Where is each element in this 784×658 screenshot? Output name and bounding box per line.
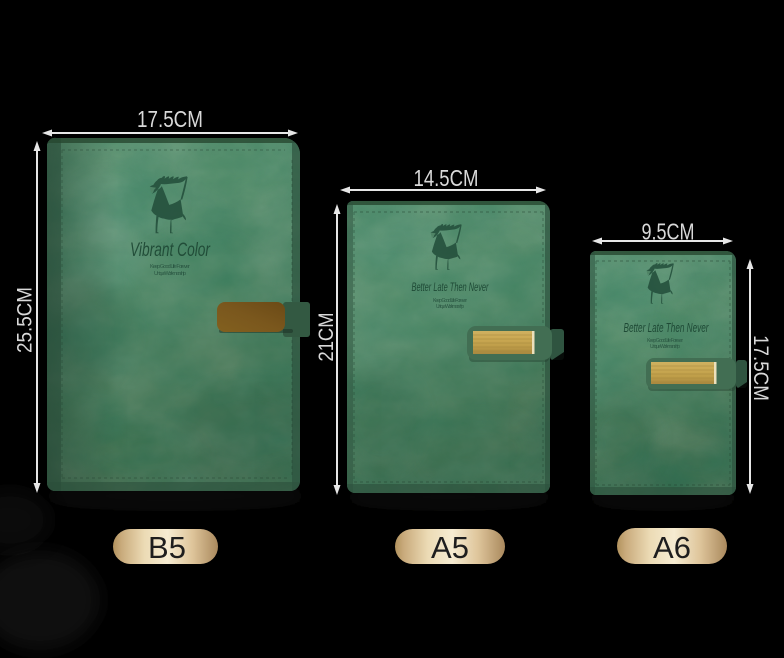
svg-text:25.5CM: 25.5CM — [13, 287, 37, 353]
svg-text:17.5CM: 17.5CM — [749, 335, 773, 401]
svg-text:14.5CM: 14.5CM — [414, 165, 479, 191]
svg-text:Better Late Then Never: Better Late Then Never — [412, 280, 490, 294]
svg-text:Vibrant Color: Vibrant Color — [130, 240, 210, 261]
svg-text:Keep Good Life Forever: Keep Good Life Forever — [150, 264, 190, 270]
svg-text:A6: A6 — [653, 530, 691, 565]
svg-text:B5: B5 — [148, 530, 186, 565]
svg-text:17.5CM: 17.5CM — [137, 106, 203, 132]
svg-text:9.5CM: 9.5CM — [642, 219, 695, 245]
svg-text:21CM: 21CM — [314, 313, 338, 362]
svg-text:A5: A5 — [431, 530, 469, 565]
svg-text:Better Late Then Never: Better Late Then Never — [624, 321, 710, 335]
svg-text:Unique Workmanship: Unique Workmanship — [650, 344, 680, 350]
svg-text:Unique Workmanship: Unique Workmanship — [154, 271, 186, 277]
svg-text:Unique Workmanship: Unique Workmanship — [436, 304, 464, 310]
